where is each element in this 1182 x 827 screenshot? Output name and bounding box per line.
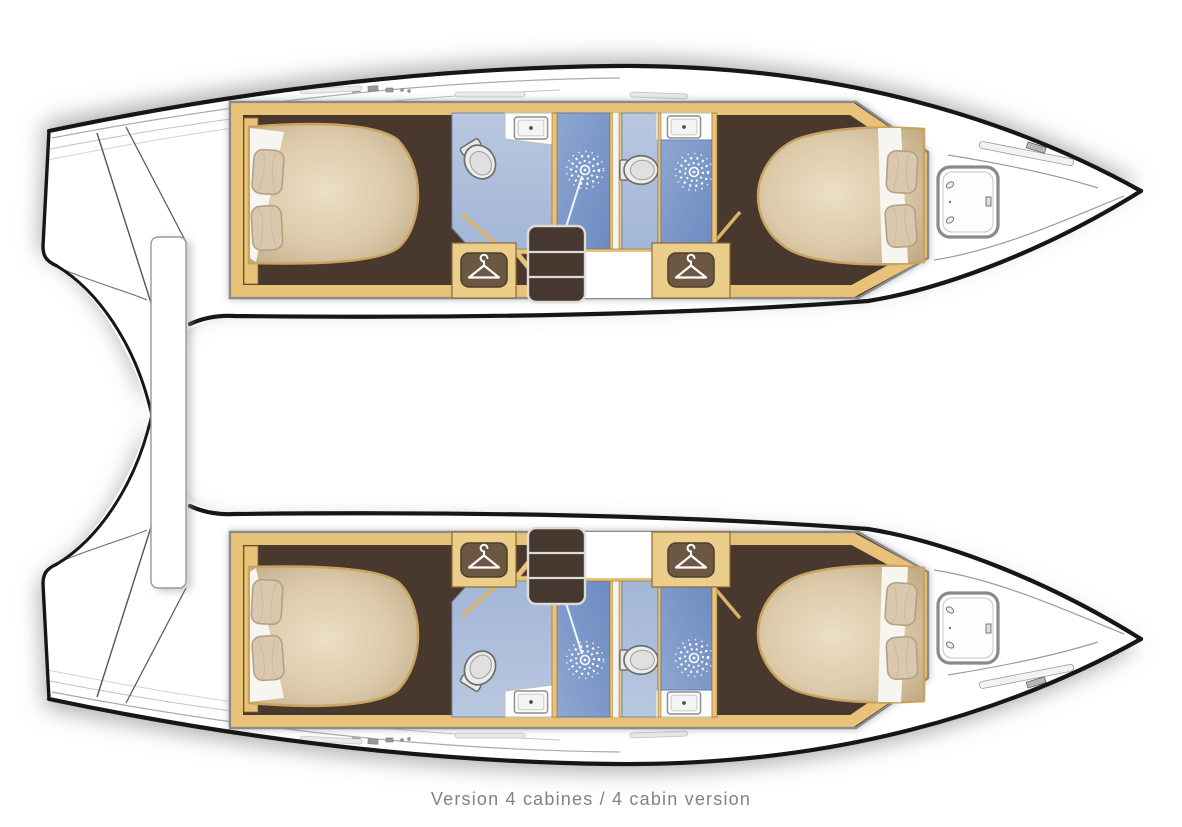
- plan-caption: Version 4 cabines / 4 cabin version: [0, 789, 1182, 810]
- floor-plan-page: Version 4 cabines / 4 cabin version: [0, 0, 1182, 827]
- transom-slat: [151, 237, 186, 588]
- hull-bottom: [43, 412, 1141, 764]
- hull-top: [43, 66, 1141, 418]
- floor-plan-svg: [0, 0, 1182, 827]
